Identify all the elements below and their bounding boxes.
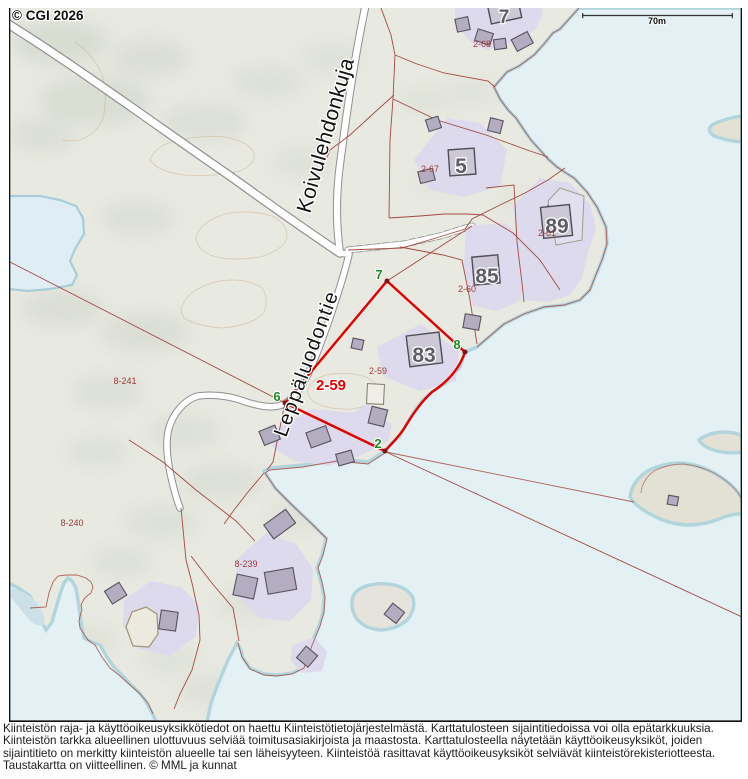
- svg-text:2-59: 2-59: [316, 377, 346, 394]
- svg-text:2-61: 2-61: [538, 228, 556, 238]
- svg-text:2-60: 2-60: [458, 284, 476, 294]
- svg-text:5: 5: [455, 155, 467, 178]
- svg-text:© CGI 2026: © CGI 2026: [12, 8, 84, 23]
- svg-text:2-59: 2-59: [369, 366, 387, 376]
- svg-text:2: 2: [374, 436, 381, 451]
- svg-text:70m: 70m: [648, 16, 666, 26]
- svg-text:85: 85: [475, 265, 499, 288]
- svg-text:8: 8: [453, 337, 460, 352]
- svg-text:7: 7: [499, 7, 510, 28]
- svg-text:83: 83: [412, 344, 435, 367]
- svg-text:7: 7: [375, 267, 382, 282]
- svg-text:2-67: 2-67: [421, 164, 439, 174]
- svg-text:8-239: 8-239: [234, 559, 257, 569]
- svg-text:8-241: 8-241: [113, 376, 136, 386]
- svg-text:8-240: 8-240: [60, 518, 83, 528]
- svg-text:2-68: 2-68: [473, 39, 491, 49]
- svg-text:6: 6: [273, 389, 280, 404]
